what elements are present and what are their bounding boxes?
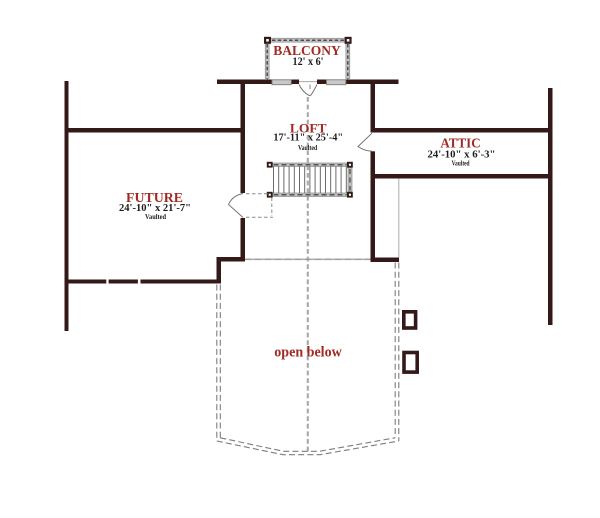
svg-text:12' x 6': 12' x 6': [293, 56, 324, 68]
svg-text:Vaulted: Vaulted: [298, 144, 317, 152]
svg-text:Vaulted: Vaulted: [145, 213, 166, 221]
svg-text:17'-11" x 25'-4": 17'-11" x 25'-4": [273, 132, 343, 144]
svg-text:open below: open below: [274, 345, 342, 361]
svg-text:Vaulted: Vaulted: [452, 160, 470, 168]
